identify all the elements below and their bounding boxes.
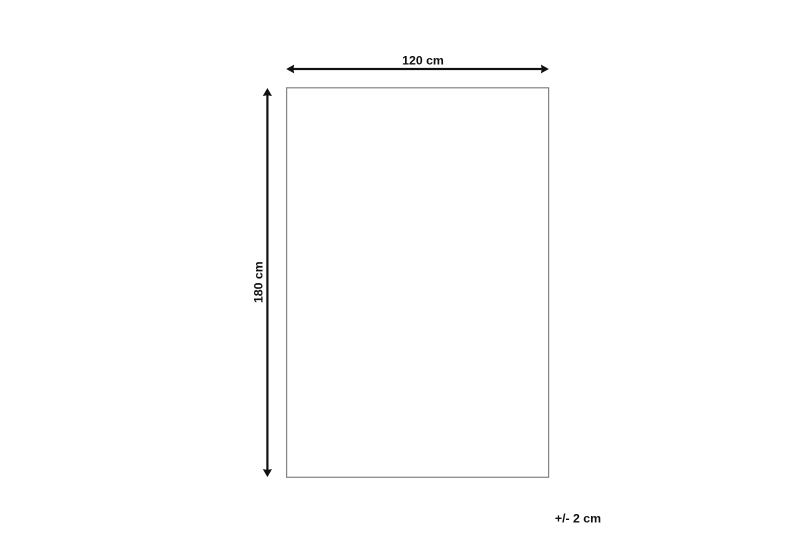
svg-text:+/- 2 cm: +/- 2 cm bbox=[555, 512, 601, 526]
svg-text:180 cm: 180 cm bbox=[252, 261, 266, 303]
svg-text:120 cm: 120 cm bbox=[402, 54, 444, 68]
